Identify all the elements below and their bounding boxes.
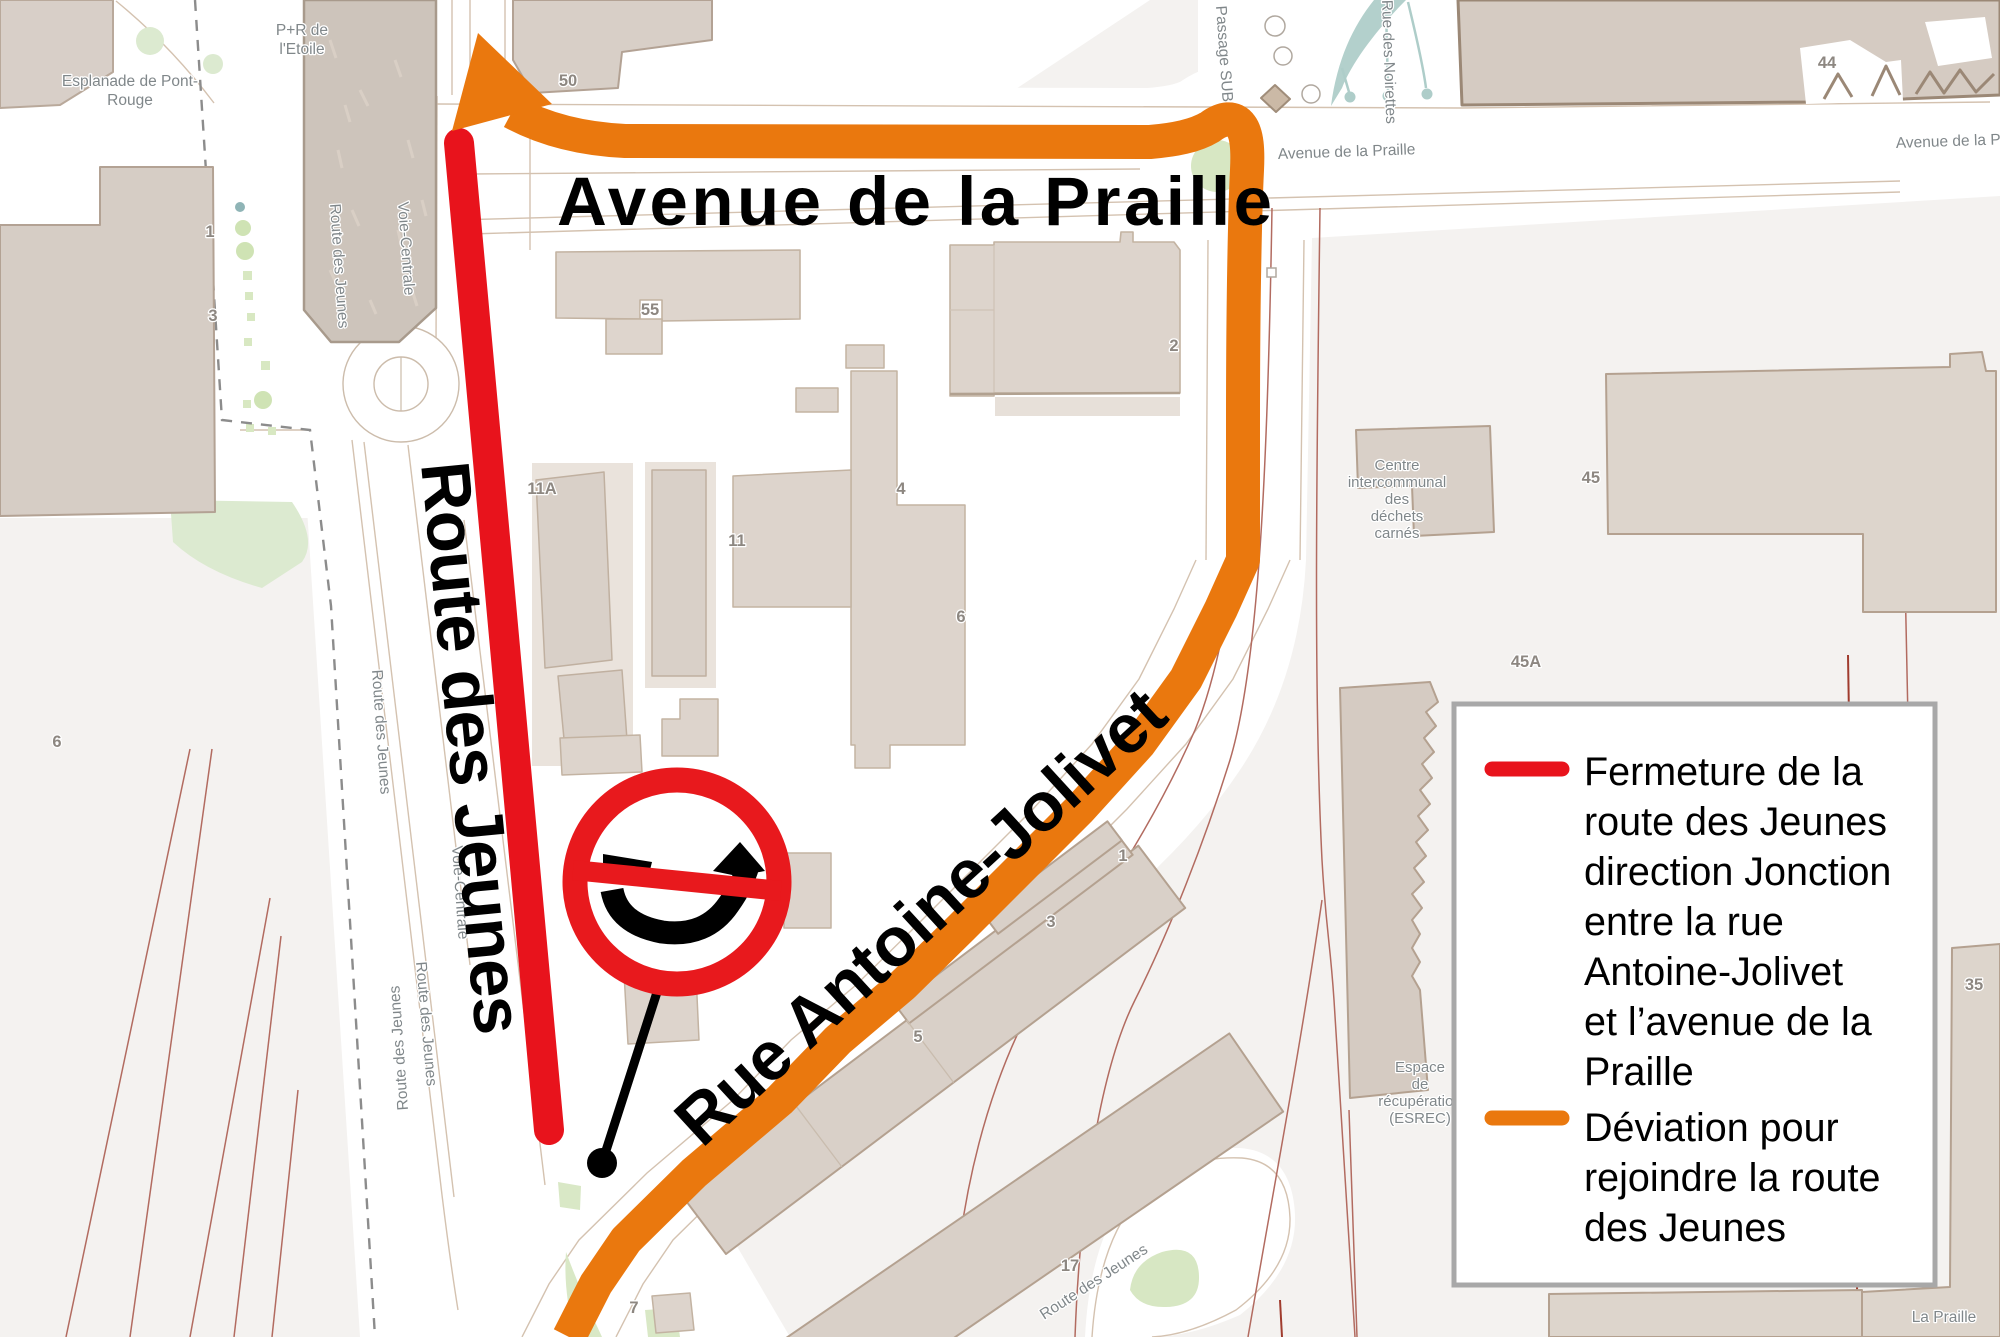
svg-text:5: 5 [913, 1028, 922, 1046]
svg-text:des Jeunes: des Jeunes [1584, 1206, 1786, 1250]
svg-text:récupération: récupération [1378, 1093, 1461, 1110]
svg-text:1: 1 [1118, 847, 1127, 865]
svg-text:35: 35 [1965, 976, 1983, 994]
svg-text:3: 3 [208, 307, 217, 325]
svg-text:Centre: Centre [1374, 457, 1419, 474]
svg-text:3: 3 [1046, 913, 1055, 931]
svg-text:Esplanade de Pont-: Esplanade de Pont- [62, 73, 198, 90]
svg-text:(ESREC): (ESREC) [1389, 1110, 1451, 1127]
svg-text:50: 50 [559, 72, 577, 90]
svg-text:2: 2 [1169, 337, 1178, 355]
svg-text:carnés: carnés [1374, 525, 1419, 542]
svg-text:Espace: Espace [1395, 1059, 1445, 1076]
svg-text:des: des [1385, 491, 1409, 508]
svg-text:17: 17 [1061, 1257, 1079, 1275]
svg-text:6: 6 [956, 608, 965, 626]
svg-text:entre la rue: entre la rue [1584, 900, 1784, 944]
svg-text:Rouge: Rouge [107, 92, 153, 109]
svg-text:11A: 11A [527, 480, 556, 498]
svg-text:Fermeture de la: Fermeture de la [1584, 750, 1863, 794]
svg-text:11: 11 [728, 532, 745, 550]
svg-text:7: 7 [629, 1299, 638, 1317]
svg-text:Antoine-Jolivet: Antoine-Jolivet [1584, 950, 1843, 994]
svg-text:l'Etoile: l'Etoile [279, 41, 324, 58]
svg-text:rejoindre la route: rejoindre la route [1584, 1156, 1880, 1200]
svg-text:Avenue de la Pr: Avenue de la Pr [1896, 131, 2000, 152]
svg-text:déchets: déchets [1371, 508, 1424, 525]
svg-text:direction Jonction: direction Jonction [1584, 850, 1891, 894]
svg-text:55: 55 [641, 301, 659, 319]
svg-text:route des Jeunes: route des Jeunes [1584, 800, 1887, 844]
svg-text:Praille: Praille [1584, 1050, 1694, 1094]
svg-text:1: 1 [205, 223, 214, 241]
svg-text:intercommunal: intercommunal [1348, 474, 1446, 491]
svg-text:et l’avenue de la: et l’avenue de la [1584, 1000, 1872, 1044]
svg-text:6: 6 [52, 733, 61, 751]
svg-text:Déviation pour: Déviation pour [1584, 1106, 1839, 1150]
svg-text:45A: 45A [1511, 653, 1541, 671]
svg-text:La Praille: La Praille [1912, 1309, 1977, 1326]
svg-text:45: 45 [1582, 469, 1600, 487]
svg-text:P+R de: P+R de [276, 22, 328, 39]
svg-text:de: de [1412, 1076, 1429, 1093]
svg-text:44: 44 [1818, 54, 1837, 72]
svg-text:4: 4 [896, 480, 906, 498]
